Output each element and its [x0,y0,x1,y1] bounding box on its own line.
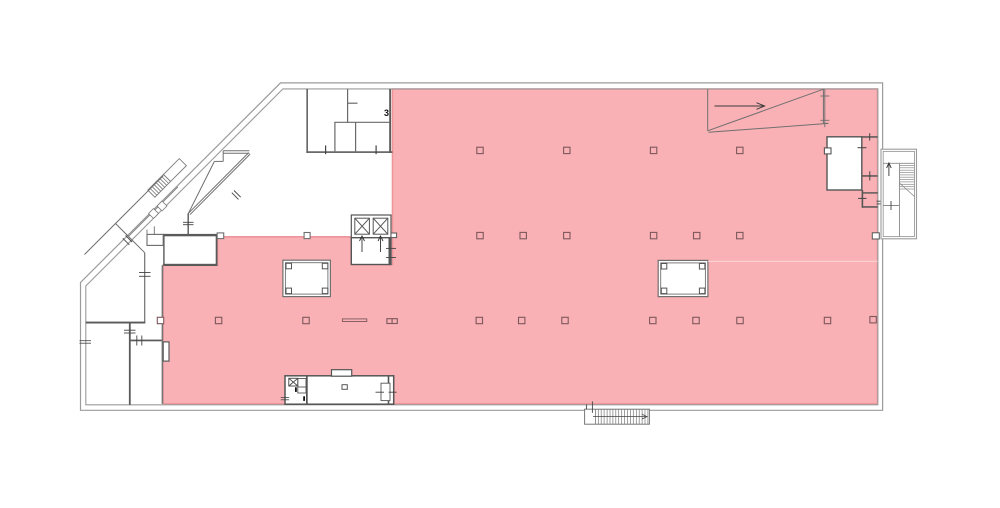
svg-text:3: 3 [384,108,389,118]
